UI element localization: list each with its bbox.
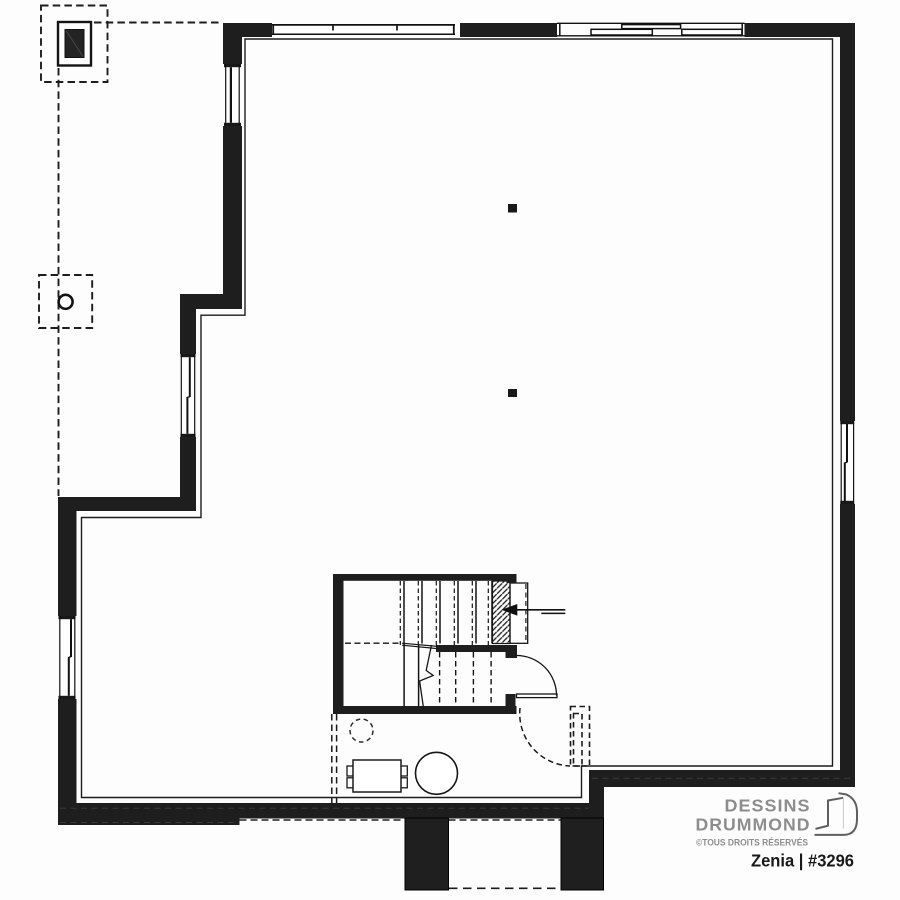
svg-text:DRUMMOND: DRUMMOND bbox=[696, 815, 811, 835]
svg-text:DESSINS: DESSINS bbox=[725, 796, 811, 816]
svg-text:Zenia | #3296: Zenia | #3296 bbox=[751, 851, 854, 871]
svg-text:©TOUS DROITS RÉSERVÉS: ©TOUS DROITS RÉSERVÉS bbox=[696, 838, 808, 849]
